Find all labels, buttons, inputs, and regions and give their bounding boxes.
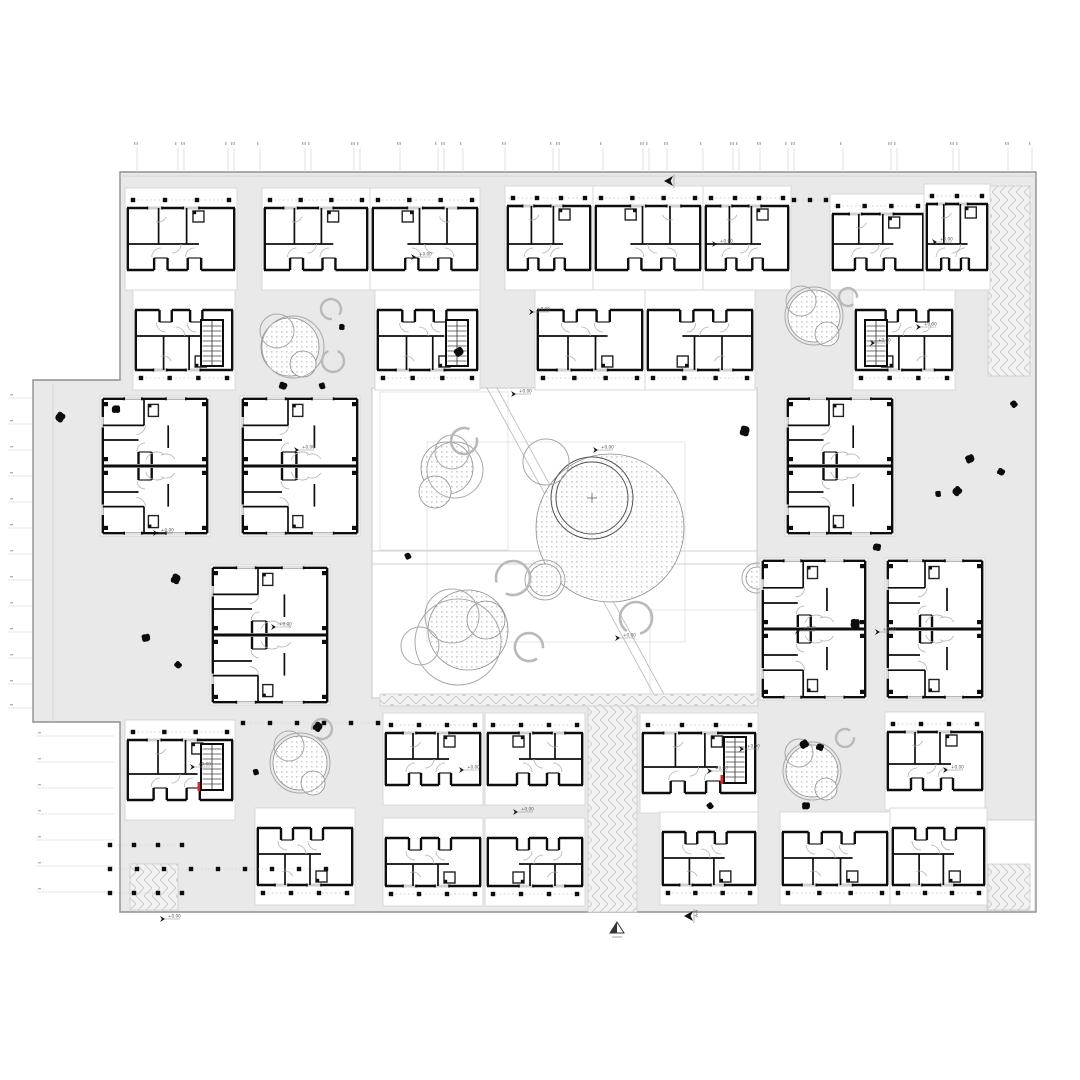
level-marker-label: +0.00 bbox=[279, 622, 292, 627]
level-marker-label: +0.00 bbox=[161, 528, 174, 533]
level-marker-label: +0.00 bbox=[168, 914, 181, 919]
level-marker-label: +0.00 bbox=[924, 322, 937, 327]
building-block bbox=[100, 396, 210, 536]
level-marker-label: +0.00 bbox=[601, 445, 614, 450]
building-block bbox=[505, 186, 593, 290]
level-marker-label: +0.00 bbox=[302, 445, 315, 450]
level-marker-label: +0.00 bbox=[883, 627, 896, 632]
building-block bbox=[785, 396, 895, 536]
level-marker-label: +0.00 bbox=[537, 307, 550, 312]
building-block bbox=[240, 396, 360, 536]
level-marker-label: +0.00 bbox=[521, 807, 534, 812]
building-block bbox=[890, 808, 987, 905]
hatched-ramp bbox=[988, 864, 1030, 910]
building-block bbox=[885, 712, 985, 810]
level-marker-label: +0.00 bbox=[720, 239, 733, 244]
level-marker-label: +0.00 bbox=[467, 765, 480, 770]
building-block bbox=[383, 818, 483, 906]
building-block bbox=[133, 290, 235, 390]
building-block bbox=[660, 812, 758, 905]
building-block bbox=[780, 812, 890, 905]
building-block bbox=[640, 713, 758, 813]
building-block bbox=[383, 713, 483, 805]
building-block bbox=[375, 290, 480, 390]
building-block bbox=[593, 186, 703, 290]
building-block bbox=[255, 808, 355, 905]
level-marker-label: +0.00 bbox=[715, 766, 728, 771]
building-block bbox=[485, 713, 585, 805]
level-marker-label: +0.00 bbox=[803, 626, 816, 631]
building-block bbox=[485, 818, 585, 906]
building-block bbox=[830, 194, 926, 290]
level-marker-label: +0.00 bbox=[940, 237, 953, 242]
building-block bbox=[125, 188, 237, 290]
level-marker-label: +0.00 bbox=[198, 762, 211, 767]
hatched-ramp bbox=[380, 694, 758, 706]
building-block bbox=[885, 558, 985, 700]
building-block bbox=[210, 565, 330, 705]
level-marker-label: +0.00 bbox=[623, 633, 636, 638]
building-block bbox=[924, 184, 990, 290]
building-block bbox=[125, 720, 235, 820]
level-marker-label: +0.00 bbox=[747, 744, 760, 749]
building-block bbox=[853, 290, 955, 390]
level-marker-label: +0.00 bbox=[519, 389, 532, 394]
section-marker-label: A-A bbox=[694, 910, 699, 917]
level-marker-label: +0.00 bbox=[951, 765, 964, 770]
hatched-ramp bbox=[588, 706, 637, 912]
building-block bbox=[703, 186, 791, 290]
level-marker-label: +0.00 bbox=[419, 252, 432, 257]
floor-plan-sheet: +0.00+0.00+0.00+0.00+0.00+0.00+0.00+0.00… bbox=[0, 0, 1080, 1080]
floor-plan-drawing: +0.00+0.00+0.00+0.00+0.00+0.00+0.00+0.00… bbox=[0, 0, 1080, 1080]
floor-plan-canvas: +0.00+0.00+0.00+0.00+0.00+0.00+0.00+0.00… bbox=[0, 0, 1080, 1080]
building-block bbox=[370, 188, 480, 290]
building-block bbox=[645, 290, 755, 390]
building-block bbox=[262, 188, 370, 290]
building-block bbox=[535, 290, 645, 390]
level-marker-label: +0.00 bbox=[878, 338, 891, 343]
hatched-ramp bbox=[988, 186, 1030, 376]
